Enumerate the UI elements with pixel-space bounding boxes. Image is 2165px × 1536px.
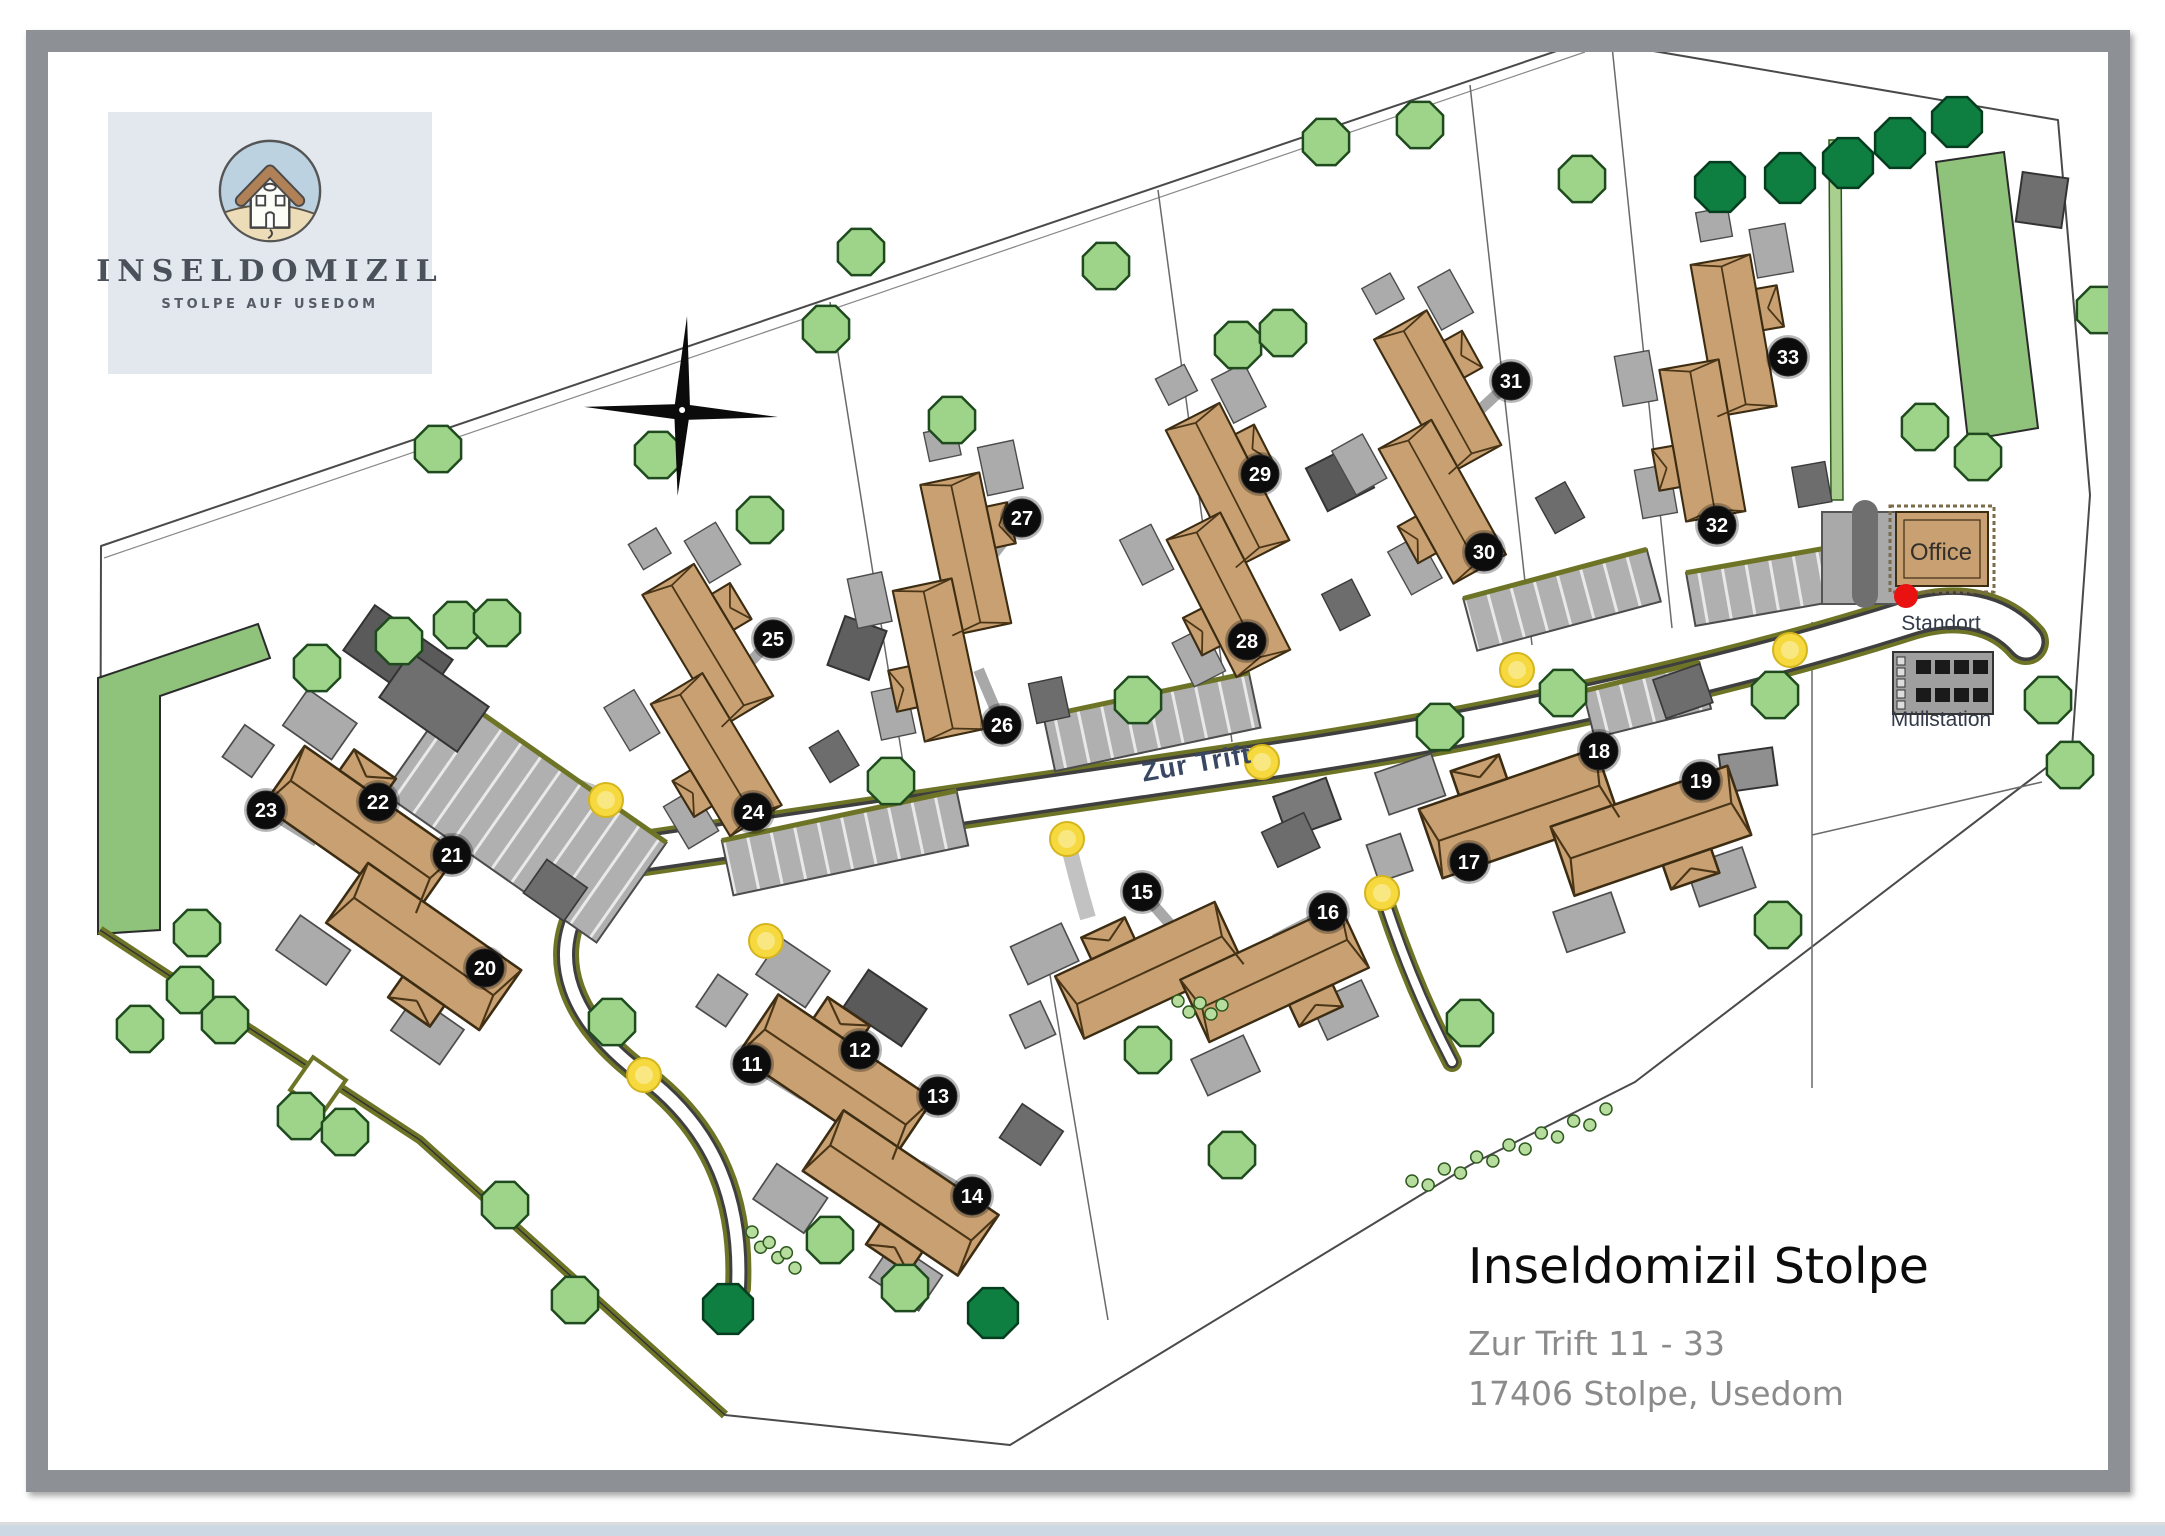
tree-icon bbox=[589, 999, 635, 1045]
standort-marker bbox=[1894, 584, 1918, 608]
house-marker-28: 28 bbox=[1225, 619, 1269, 663]
tree-icon bbox=[278, 1093, 324, 1139]
svg-text:15: 15 bbox=[1131, 882, 1153, 904]
bush-icon bbox=[1519, 1143, 1531, 1155]
tree-icon bbox=[737, 497, 783, 543]
house-marker-16: 16 bbox=[1306, 890, 1350, 934]
svg-text:32: 32 bbox=[1706, 515, 1728, 537]
house-marker-29: 29 bbox=[1238, 452, 1282, 496]
svg-text:33: 33 bbox=[1777, 347, 1799, 369]
svg-text:28: 28 bbox=[1236, 631, 1258, 653]
map-label: Müllstation bbox=[1891, 708, 1991, 731]
svg-text:11: 11 bbox=[741, 1054, 762, 1076]
bush-icon bbox=[1406, 1175, 1418, 1187]
address-line-2: 17406 Stolpe, Usedom bbox=[1468, 1369, 1929, 1419]
tree-icon bbox=[294, 645, 340, 691]
tree-icon bbox=[1303, 119, 1349, 165]
bush-icon bbox=[763, 1236, 775, 1248]
house-marker-13: 13 bbox=[916, 1074, 960, 1118]
tree-icon bbox=[117, 1006, 163, 1052]
tree-icon bbox=[415, 426, 461, 472]
svg-text:24: 24 bbox=[742, 802, 765, 824]
tree-icon bbox=[1215, 322, 1261, 368]
tree-icon bbox=[1955, 434, 2001, 480]
bush-icon bbox=[1183, 1006, 1195, 1018]
house-marker-24: 24 bbox=[731, 790, 775, 834]
tree-icon bbox=[1209, 1132, 1255, 1178]
tree-icon bbox=[322, 1109, 368, 1155]
house-marker-20: 20 bbox=[463, 946, 507, 990]
dark-tree-icon bbox=[1765, 153, 1815, 203]
tree-icon bbox=[1540, 670, 1586, 716]
map-label: Office bbox=[1910, 539, 1972, 566]
bush-icon bbox=[780, 1247, 792, 1259]
svg-text:29: 29 bbox=[1249, 464, 1271, 486]
tree-icon bbox=[1447, 1000, 1493, 1046]
house-marker-26: 26 bbox=[980, 703, 1024, 747]
tree-icon bbox=[1083, 243, 1129, 289]
dark-tree-icon bbox=[1932, 97, 1982, 147]
tree-icon bbox=[1125, 1027, 1171, 1073]
house-marker-33: 33 bbox=[1766, 335, 1810, 379]
svg-text:16: 16 bbox=[1317, 902, 1339, 924]
bush-icon bbox=[1455, 1167, 1467, 1179]
house-marker-22: 22 bbox=[356, 780, 400, 824]
tree-icon bbox=[1755, 902, 1801, 948]
address-line-1: Zur Trift 11 - 33 bbox=[1468, 1319, 1929, 1369]
bush-icon bbox=[1471, 1151, 1483, 1163]
tree-icon bbox=[1752, 672, 1798, 718]
tree-icon bbox=[2025, 677, 2071, 723]
bottom-strip bbox=[0, 1525, 2165, 1536]
tree-icon bbox=[376, 618, 422, 664]
dark-tree-icon bbox=[1875, 118, 1925, 168]
dark-tree-icon bbox=[1695, 162, 1745, 212]
bush-icon bbox=[1216, 999, 1228, 1011]
logo-subtitle: STOLPE AUF USEDOM bbox=[161, 297, 378, 312]
tree-icon bbox=[552, 1277, 598, 1323]
map-label: Standort bbox=[1901, 612, 1981, 635]
bush-icon bbox=[1422, 1179, 1434, 1191]
bush-icon bbox=[1205, 1008, 1217, 1020]
tree-icon bbox=[868, 758, 914, 804]
svg-text:31: 31 bbox=[1500, 371, 1522, 393]
house-marker-12: 12 bbox=[838, 1028, 882, 1072]
svg-text:12: 12 bbox=[849, 1040, 871, 1062]
tree-icon bbox=[803, 306, 849, 352]
bush-icon bbox=[1568, 1115, 1580, 1127]
logo-title: INSELDOMIZIL bbox=[96, 254, 444, 289]
tree-icon bbox=[474, 600, 520, 646]
tree-icon bbox=[838, 229, 884, 275]
dark-tree-icon bbox=[1823, 138, 1873, 188]
bush-icon bbox=[746, 1226, 758, 1238]
tree-icon bbox=[482, 1182, 528, 1228]
bush-icon bbox=[1172, 995, 1184, 1007]
svg-text:26: 26 bbox=[991, 715, 1013, 737]
tree-icon bbox=[807, 1217, 853, 1263]
tree-icon bbox=[929, 397, 975, 443]
house-marker-25: 25 bbox=[751, 617, 795, 661]
house-marker-32: 32 bbox=[1695, 503, 1739, 547]
bush-icon bbox=[789, 1262, 801, 1274]
svg-text:18: 18 bbox=[1588, 741, 1610, 763]
bush-icon bbox=[1600, 1103, 1612, 1115]
bush-icon bbox=[1503, 1139, 1515, 1151]
logo-house-icon bbox=[217, 138, 323, 244]
tree-icon bbox=[1397, 102, 1443, 148]
garage bbox=[2016, 172, 2069, 228]
site-plan-page: 1112131415161718192021222324252627282930… bbox=[0, 0, 2165, 1536]
svg-text:21: 21 bbox=[441, 845, 463, 867]
tree-icon bbox=[1115, 677, 1161, 723]
muellstation-building bbox=[1893, 652, 1993, 714]
tree-icon bbox=[1902, 404, 1948, 450]
tree-icon bbox=[202, 997, 248, 1043]
bush-icon bbox=[1487, 1155, 1499, 1167]
bush-icon bbox=[1194, 997, 1206, 1009]
house-marker-11: 11 bbox=[730, 1042, 774, 1086]
svg-text:23: 23 bbox=[255, 800, 277, 822]
tree-icon bbox=[1559, 156, 1605, 202]
tree-icon bbox=[2047, 742, 2093, 788]
svg-text:14: 14 bbox=[961, 1186, 984, 1208]
house-marker-31: 31 bbox=[1489, 359, 1533, 403]
bush-icon bbox=[1535, 1127, 1547, 1139]
svg-text:13: 13 bbox=[927, 1086, 949, 1108]
bush-icon bbox=[1584, 1119, 1596, 1131]
svg-text:22: 22 bbox=[367, 792, 389, 814]
house-marker-19: 19 bbox=[1679, 759, 1723, 803]
tree-icon bbox=[635, 432, 681, 478]
dark-tree-icon bbox=[703, 1284, 753, 1334]
svg-text:27: 27 bbox=[1011, 508, 1033, 530]
house-marker-14: 14 bbox=[950, 1174, 994, 1218]
house-marker-18: 18 bbox=[1577, 729, 1621, 773]
tree-icon bbox=[174, 910, 220, 956]
bush-icon bbox=[1438, 1163, 1450, 1175]
svg-text:25: 25 bbox=[762, 629, 784, 651]
svg-text:30: 30 bbox=[1473, 542, 1495, 564]
house-marker-27: 27 bbox=[1000, 496, 1044, 540]
house-marker-15: 15 bbox=[1120, 870, 1164, 914]
house-marker-23: 23 bbox=[244, 788, 288, 832]
title-block: Inseldomizil Stolpe Zur Trift 11 - 33 17… bbox=[1468, 1238, 1929, 1418]
tree-icon bbox=[882, 1265, 928, 1311]
svg-text:20: 20 bbox=[474, 958, 496, 980]
tree-icon bbox=[1260, 310, 1306, 356]
house-marker-30: 30 bbox=[1462, 530, 1506, 574]
page-title: Inseldomizil Stolpe bbox=[1468, 1238, 1929, 1295]
logo: INSELDOMIZIL STOLPE AUF USEDOM bbox=[108, 112, 432, 374]
house-marker-17: 17 bbox=[1447, 840, 1491, 884]
svg-text:17: 17 bbox=[1458, 852, 1480, 874]
tree-icon bbox=[2077, 287, 2123, 333]
bush-icon bbox=[1552, 1131, 1564, 1143]
tree-icon bbox=[1417, 704, 1463, 750]
svg-text:19: 19 bbox=[1690, 771, 1712, 793]
house-marker-21: 21 bbox=[430, 833, 474, 877]
dark-tree-icon bbox=[968, 1288, 1018, 1338]
